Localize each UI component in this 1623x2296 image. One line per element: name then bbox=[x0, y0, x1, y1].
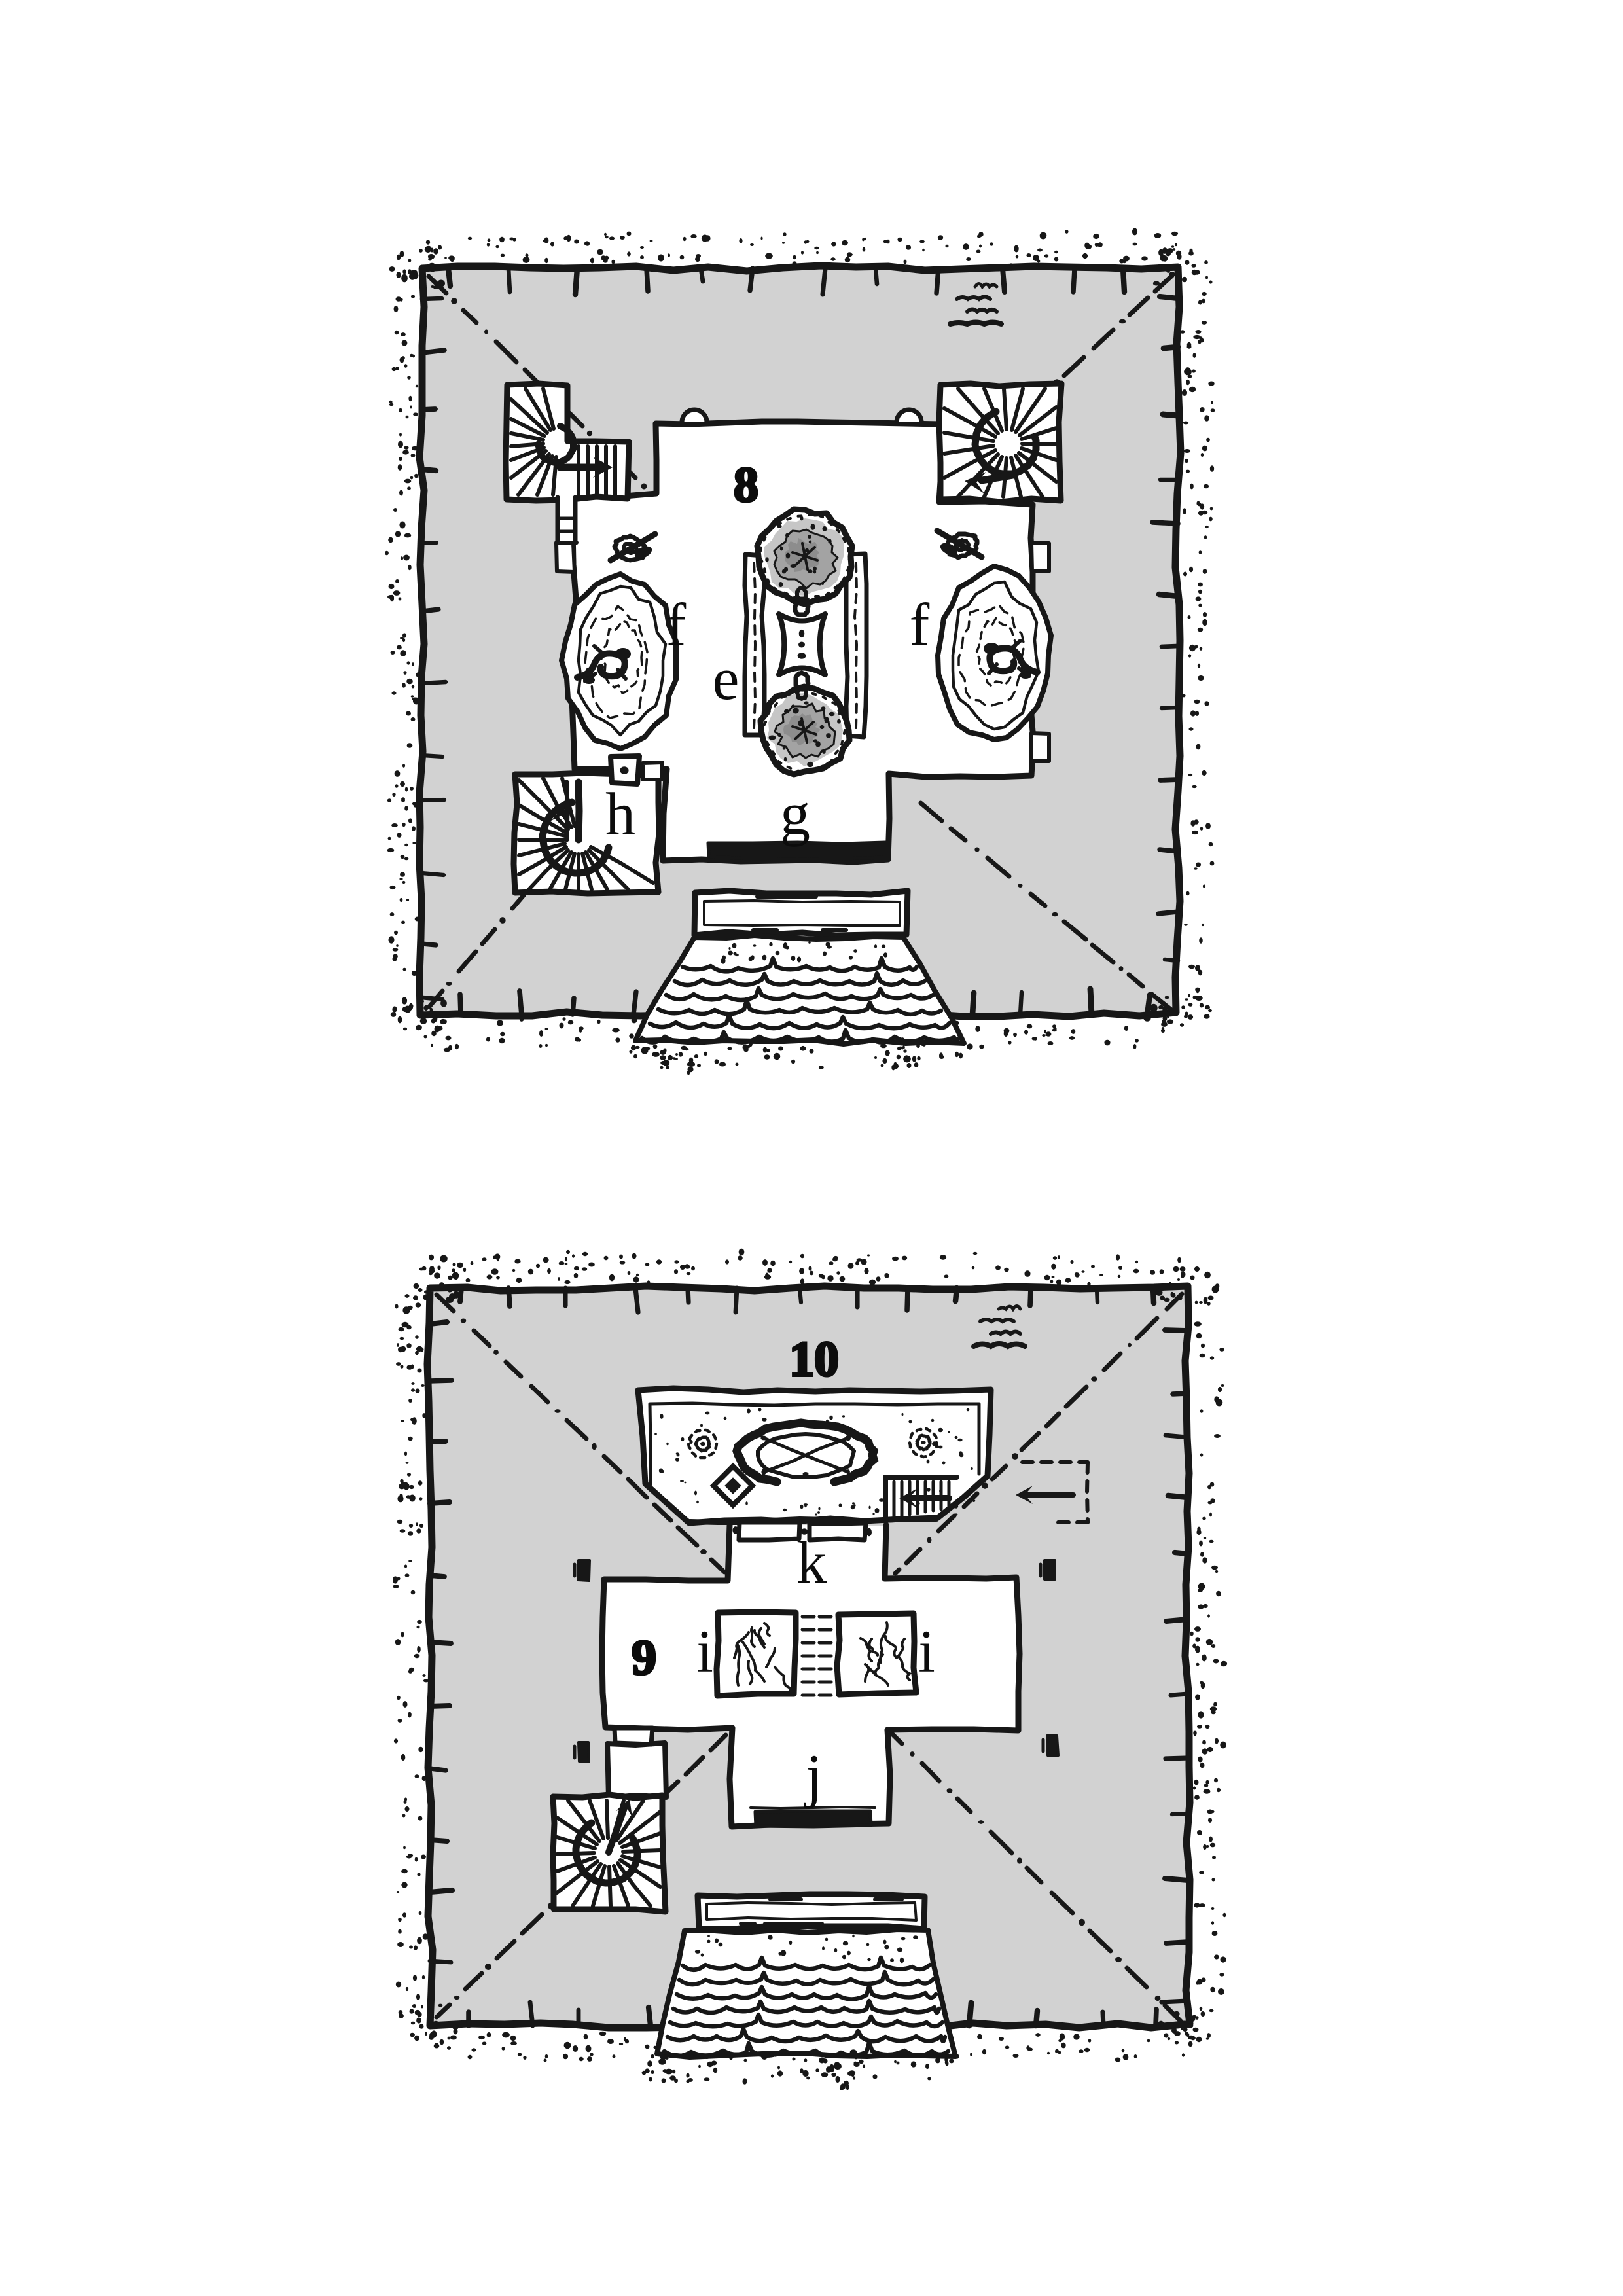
svg-text:f: f bbox=[910, 591, 930, 658]
svg-text:e: e bbox=[713, 645, 740, 712]
svg-text:k: k bbox=[796, 1529, 827, 1596]
svg-text:h: h bbox=[605, 780, 635, 847]
svg-text:8: 8 bbox=[734, 457, 758, 512]
svg-text:i: i bbox=[696, 1618, 713, 1685]
svg-text:i: i bbox=[918, 1618, 935, 1685]
svg-text:j: j bbox=[804, 1742, 823, 1809]
svg-text:9: 9 bbox=[632, 1630, 656, 1685]
svg-text:10: 10 bbox=[789, 1332, 839, 1387]
svg-text:f: f bbox=[666, 591, 687, 658]
svg-text:g: g bbox=[780, 780, 810, 847]
